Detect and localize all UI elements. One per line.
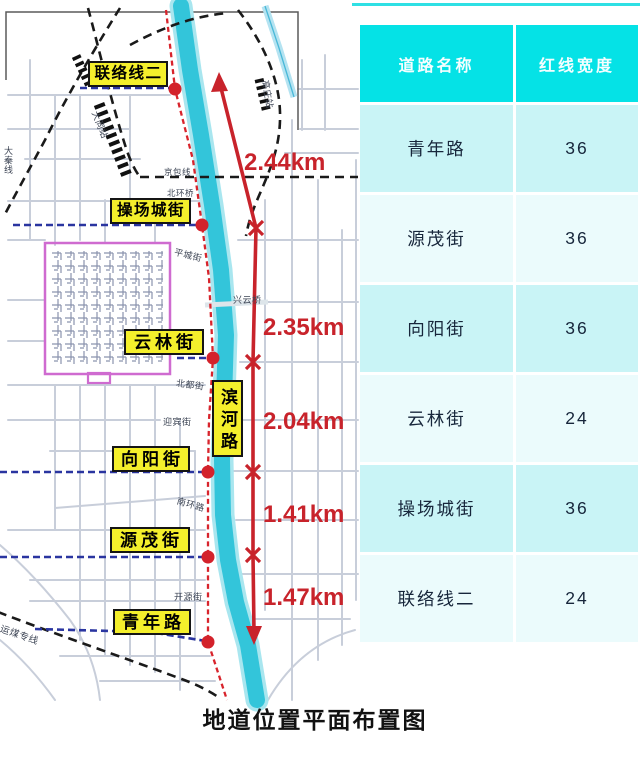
xingyun-bridge-label: 兴云桥	[233, 293, 262, 306]
street-label-qingnian: 青年路	[113, 609, 191, 635]
road-width-table: 道路名称 红线宽度 青年路 36 源茂街 36 向阳街 36 云林街 24 操场…	[360, 25, 638, 642]
beihuan-bridge-label: 北环桥	[167, 187, 194, 199]
table-row-name: 源茂街	[360, 195, 513, 282]
yingbin-street-label: 迎宾街	[163, 415, 192, 428]
distance-label-3: 2.04km	[263, 408, 344, 436]
table-row-width: 36	[516, 195, 638, 282]
table-row-name: 联络线二	[360, 555, 513, 642]
street-label-yuanmao: 源茂街	[110, 527, 190, 553]
street-label-yunlin: 云林街	[124, 329, 204, 355]
table-row-name: 青年路	[360, 105, 513, 192]
street-label-binhe: 滨河路	[212, 380, 243, 457]
table-row-width: 36	[516, 285, 638, 372]
distance-label-4: 1.41km	[263, 501, 344, 529]
table-row-width: 24	[516, 375, 638, 462]
street-label-xiangyang: 向阳街	[112, 446, 190, 472]
table-row-width: 36	[516, 105, 638, 192]
figure-caption: 地道位置平面布置图	[140, 701, 490, 735]
table-header-road-name: 道路名称	[360, 25, 513, 102]
street-label-lianluoxian2: 联络线二	[88, 61, 168, 87]
street-label-caochangcheng: 操场城街	[110, 198, 191, 224]
page: 联络线二 操场城街 云林街 滨河路 向阳街 源茂街 青年路 2.44km 2.3…	[0, 0, 640, 760]
table-row-width: 24	[516, 555, 638, 642]
distance-label-2: 2.35km	[263, 314, 344, 342]
kaiyuan-street-label: 开源街	[174, 590, 203, 603]
jingbao-line-label: 京包线	[164, 166, 191, 178]
table-row-width: 36	[516, 465, 638, 552]
table-top-strip	[352, 3, 640, 6]
old-town-boundary	[45, 243, 170, 383]
table-row-name: 云林街	[360, 375, 513, 462]
distance-label-5: 1.47km	[263, 584, 344, 612]
distance-label-1: 2.44km	[244, 149, 325, 177]
table-row-name: 向阳街	[360, 285, 513, 372]
table-header-red-line-width: 红线宽度	[516, 25, 638, 102]
table-row-name: 操场城街	[360, 465, 513, 552]
daqin-line-label: 大秦线	[2, 146, 15, 196]
